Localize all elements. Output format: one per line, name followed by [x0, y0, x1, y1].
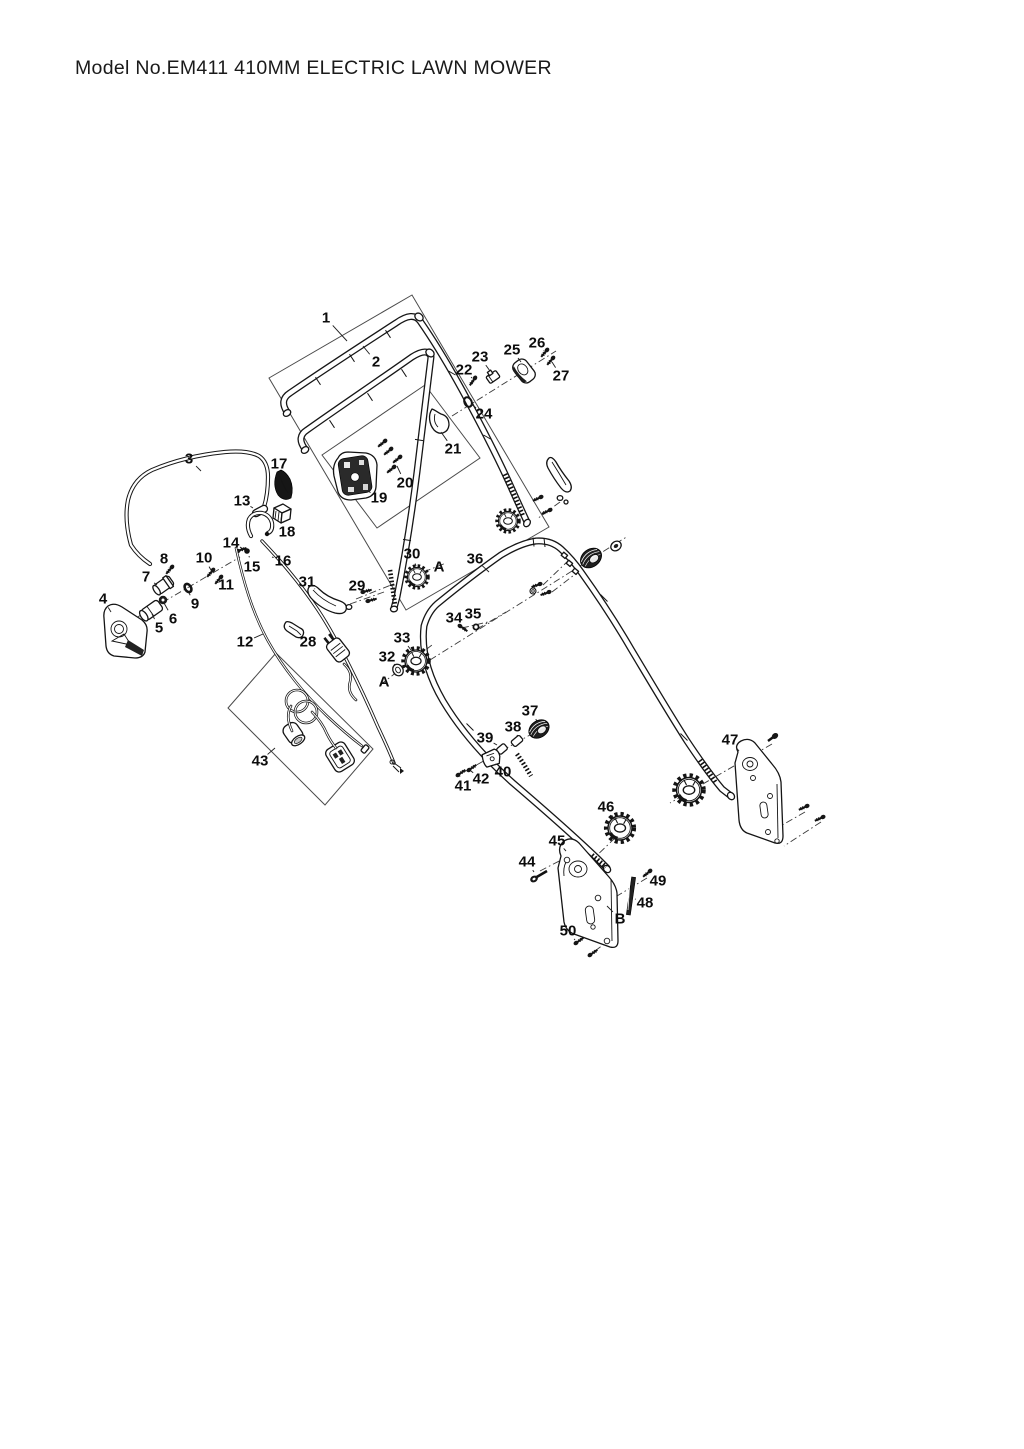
knob-right-top [497, 510, 519, 532]
part-callout-39: 39 [477, 730, 494, 747]
part-callout-18: 18 [279, 524, 296, 541]
cord-plug [324, 740, 356, 774]
clamp-25 [510, 357, 538, 386]
leader-line-3 [196, 466, 201, 471]
leader-line-12 [254, 634, 263, 638]
screw-right-lever-b [541, 507, 553, 516]
page: Model No.EM411 410MM ELECTRIC LAWN MOWER [0, 0, 1024, 1449]
leader-line-21 [441, 432, 447, 441]
leader-line-20 [397, 466, 401, 474]
part-callout-47: 47 [722, 732, 739, 749]
part-callout-45: 45 [549, 833, 566, 850]
part-callout-16: 16 [275, 553, 292, 570]
callout-layer: 1234567891011121314151617181920212223242… [99, 310, 739, 941]
clip-23 [484, 368, 500, 384]
switch-housing [334, 438, 404, 500]
part-callout-8: 8 [160, 551, 168, 568]
part-callout-13: 13 [234, 493, 251, 510]
part-callout-15: 15 [244, 559, 261, 576]
leader-line-16 [272, 557, 274, 558]
leader-line-33 [408, 646, 411, 650]
part-callout-11: 11 [218, 577, 234, 594]
rod-16 [262, 541, 394, 763]
bolt-47 [768, 732, 779, 741]
leader-line-6 [164, 603, 168, 610]
parts-diagram: 1234567891011121314151617181920212223242… [0, 0, 1024, 1449]
leader-line-2 [363, 346, 370, 354]
knob-46-right [675, 776, 704, 805]
part-callout-6: 6 [169, 611, 177, 628]
left-lock-lever-assembly [308, 566, 428, 614]
part-callout-17: 17 [271, 456, 288, 473]
part-callout-9: 9 [191, 596, 199, 613]
screw-10 [206, 567, 217, 579]
screw-47-right-b [814, 814, 826, 823]
part-callout-14: 14 [223, 535, 240, 552]
leader-line-39 [494, 743, 497, 745]
cord-socket [281, 720, 307, 748]
part-callout-35: 35 [465, 606, 482, 623]
bracket-18 [273, 504, 291, 523]
lower-handle-tube [423, 538, 736, 875]
bolt-44 [529, 871, 547, 884]
part-callout-28: 28 [300, 634, 317, 651]
knob-37 [525, 716, 552, 742]
part-callout-46: 46 [598, 799, 615, 816]
handle-knobs [391, 539, 623, 678]
part-callout-19: 19 [371, 490, 388, 507]
part-callout-32: 32 [379, 649, 396, 666]
part-callout-A: A [434, 559, 445, 576]
part-callout-41: 41 [455, 778, 472, 795]
part-callout-49: 49 [650, 873, 667, 890]
part-callout-B: B [615, 911, 626, 928]
nut-35 [473, 624, 478, 629]
part-callout-31: 31 [299, 574, 316, 591]
upper-handle-tube [282, 311, 532, 612]
part-callout-10: 10 [196, 550, 213, 567]
nut-right [530, 588, 536, 594]
part-callout-37: 37 [522, 703, 539, 720]
part-callout-36: 36 [467, 551, 484, 568]
part-callout-5: 5 [155, 620, 163, 637]
part-callout-43: 43 [252, 753, 269, 770]
part-callout-A: A [379, 674, 390, 691]
part-callout-38: 38 [505, 719, 522, 736]
part-callout-21: 21 [445, 441, 462, 458]
part-callout-40: 40 [495, 764, 512, 781]
screw-47-right-a [798, 803, 810, 812]
left-bracket-assembly [529, 814, 653, 958]
part-callout-2: 2 [372, 354, 380, 371]
fitting-7 [151, 575, 175, 597]
part-callout-27: 27 [553, 368, 570, 385]
lock-lever-right [547, 458, 572, 493]
part-callout-26: 26 [529, 335, 546, 352]
assembly-axes [112, 351, 821, 951]
part-callout-25: 25 [504, 342, 521, 359]
cable-hook [248, 513, 272, 536]
part-callout-29: 29 [349, 578, 366, 595]
leader-line-23 [486, 365, 490, 371]
pin-48 [626, 877, 635, 915]
part-callout-3: 3 [185, 451, 193, 468]
part-callout-50: 50 [560, 923, 577, 940]
switch-box-assembly [104, 564, 224, 658]
part-callout-48: 48 [637, 895, 654, 912]
part-callout-12: 12 [237, 634, 254, 651]
leader-line-13 [250, 506, 253, 508]
part-callout-22: 22 [456, 362, 473, 379]
part-callout-23: 23 [472, 349, 489, 366]
oring-9 [183, 583, 193, 594]
bracket-47 [735, 739, 783, 843]
part-callout-42: 42 [473, 771, 490, 788]
knob-30 [406, 566, 428, 588]
screw-right-lever-a [532, 494, 544, 503]
part-callout-44: 44 [519, 854, 536, 871]
right-bracket-assembly [675, 732, 827, 844]
leader-line-10 [209, 567, 211, 570]
leader-line-1 [333, 325, 347, 341]
part-callout-34: 34 [446, 610, 463, 627]
part-callout-33: 33 [394, 630, 411, 647]
part-callout-20: 20 [397, 475, 414, 492]
part-callout-30: 30 [404, 546, 421, 563]
part-callout-7: 7 [142, 569, 150, 586]
clip-38 [511, 735, 524, 747]
part-callout-4: 4 [99, 591, 108, 608]
screw-50b [587, 948, 599, 958]
part-callout-24: 24 [476, 406, 493, 423]
part-callout-1: 1 [322, 310, 330, 327]
knob-46 [606, 814, 634, 842]
